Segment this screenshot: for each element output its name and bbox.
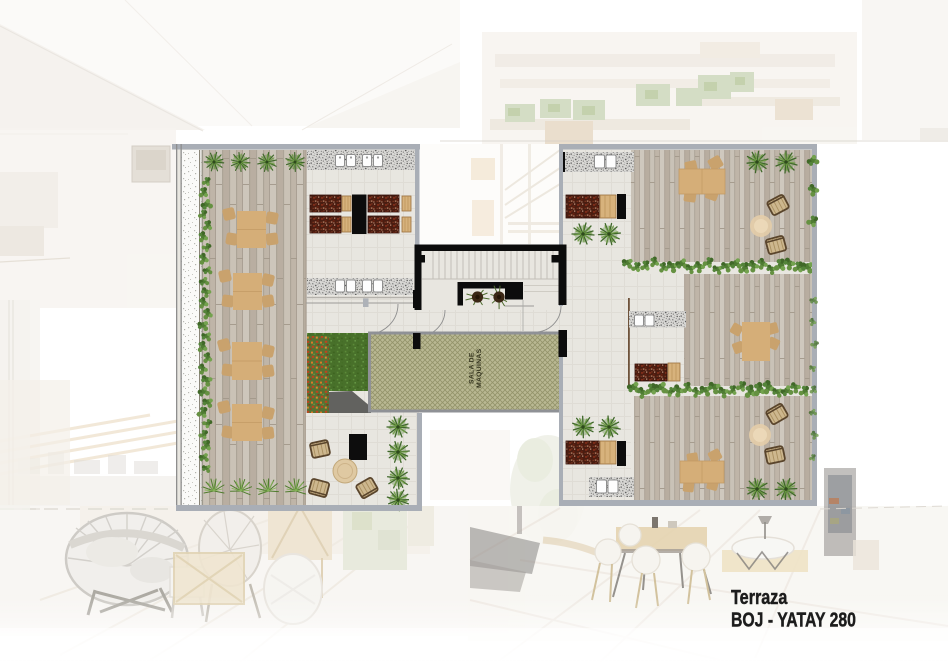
svg-text:Terraza: Terraza <box>731 586 788 608</box>
svg-text:BOJ - YATAY 280: BOJ - YATAY 280 <box>731 609 856 631</box>
svg-text:SALA DE: SALA DE <box>469 352 476 384</box>
svg-text:MAQUINAS: MAQUINAS <box>476 348 483 388</box>
